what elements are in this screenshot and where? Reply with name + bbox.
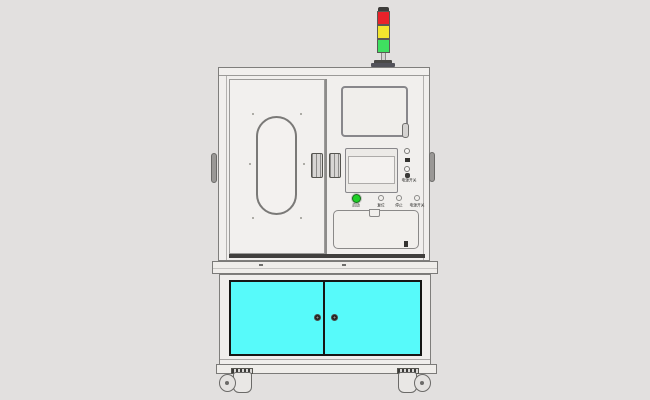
hmi-touchscreen[interactable]: [348, 156, 395, 184]
upper-cabinet-top-edge: [219, 75, 429, 76]
screw-dot: [252, 217, 254, 219]
lower-right-door[interactable]: [325, 282, 420, 354]
reset-button-label: 复位: [372, 204, 389, 208]
tower-red-lamp-icon: [377, 11, 390, 25]
caster-left-hub: [225, 381, 229, 385]
door-viewing-window: [256, 116, 297, 215]
upper-cabinet-base-strip: [229, 254, 425, 258]
screw-dot: [300, 217, 302, 219]
tower-green-lamp-icon: [377, 39, 390, 53]
right-side-handle[interactable]: [429, 152, 435, 182]
door-divider: [325, 79, 327, 254]
reset-button[interactable]: [378, 195, 384, 201]
access-panel-latch[interactable]: [369, 209, 380, 217]
tabletop-mark: [259, 264, 263, 266]
usb-port-icon: [405, 158, 410, 162]
start-button[interactable]: [352, 194, 361, 203]
power-button-label: 电源开关: [406, 204, 428, 208]
screw-dot: [303, 163, 305, 165]
left-door-knob[interactable]: [314, 314, 321, 321]
indicator-light-top: [404, 148, 410, 154]
right-door-knob[interactable]: [331, 314, 338, 321]
power-switch-label: 电源开关: [400, 179, 419, 183]
tower-yellow-lamp-icon: [377, 25, 390, 39]
caster-right-hub: [420, 381, 424, 385]
tabletop-edge-line: [213, 268, 437, 269]
left-door-handle[interactable]: [311, 153, 323, 178]
lower-left-door[interactable]: [231, 282, 323, 354]
access-panel-lock-icon[interactable]: [404, 241, 408, 247]
upper-window-handle[interactable]: [402, 123, 409, 138]
right-door-handle[interactable]: [329, 153, 341, 178]
lower-cabinet-inner-line: [220, 359, 430, 360]
left-side-handle[interactable]: [211, 153, 217, 183]
start-button-label: 启动: [347, 204, 364, 208]
power-button[interactable]: [414, 195, 420, 201]
screw-dot: [249, 163, 251, 165]
upper-right-frame-line: [423, 76, 424, 260]
key-switch-icon[interactable]: [405, 173, 410, 178]
tabletop-mark: [342, 264, 346, 266]
screw-dot: [300, 113, 302, 115]
machine-front-view: 电源开关 启动 复位 停止 电源开关: [0, 0, 650, 400]
upper-left-frame-line: [226, 76, 227, 260]
indicator-light-bottom: [404, 166, 410, 172]
stop-button[interactable]: [396, 195, 402, 201]
upper-right-window: [341, 86, 408, 137]
screw-dot: [252, 113, 254, 115]
